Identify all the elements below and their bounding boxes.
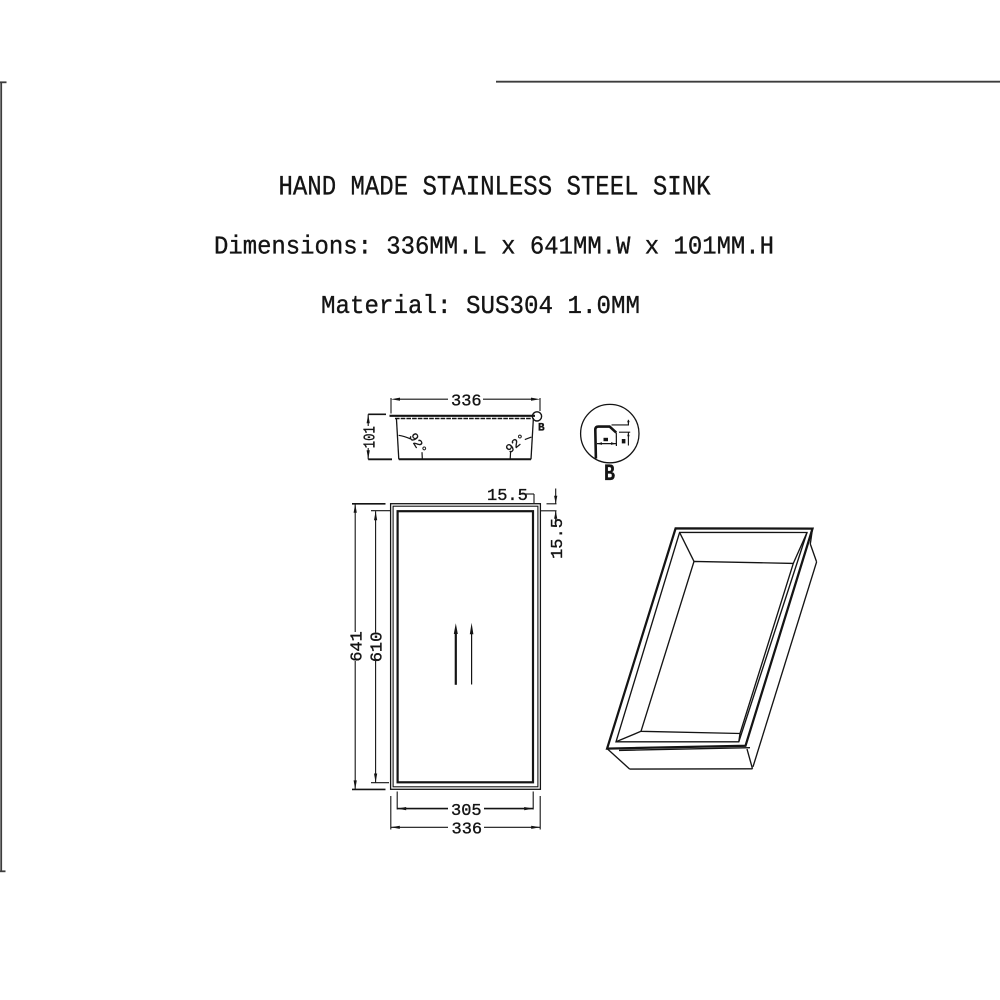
svg-text:B: B: [604, 461, 615, 487]
svg-text:641: 641: [348, 631, 367, 662]
svg-text:B: B: [538, 423, 545, 435]
svg-text:92°: 92°: [405, 431, 429, 458]
svg-text:Material: SUS304 1.0MM: Material: SUS304 1.0MM: [321, 291, 640, 321]
svg-text:610: 610: [369, 632, 388, 663]
svg-text:92°: 92°: [503, 431, 529, 456]
svg-text:15.5: 15.5: [487, 487, 528, 506]
svg-text:305: 305: [451, 802, 482, 821]
svg-text:336: 336: [451, 393, 482, 412]
svg-text:15.5: 15.5: [549, 518, 568, 559]
svg-text:Dimensions: 336MM.L x 641MM.W: Dimensions: 336MM.L x 641MM.W x 101MM.H: [214, 232, 774, 262]
svg-text:HAND MADE STAINLESS STEEL SINK: HAND MADE STAINLESS STEEL SINK: [279, 173, 711, 204]
svg-text:101: 101: [361, 426, 380, 448]
svg-text:336: 336: [452, 821, 483, 840]
